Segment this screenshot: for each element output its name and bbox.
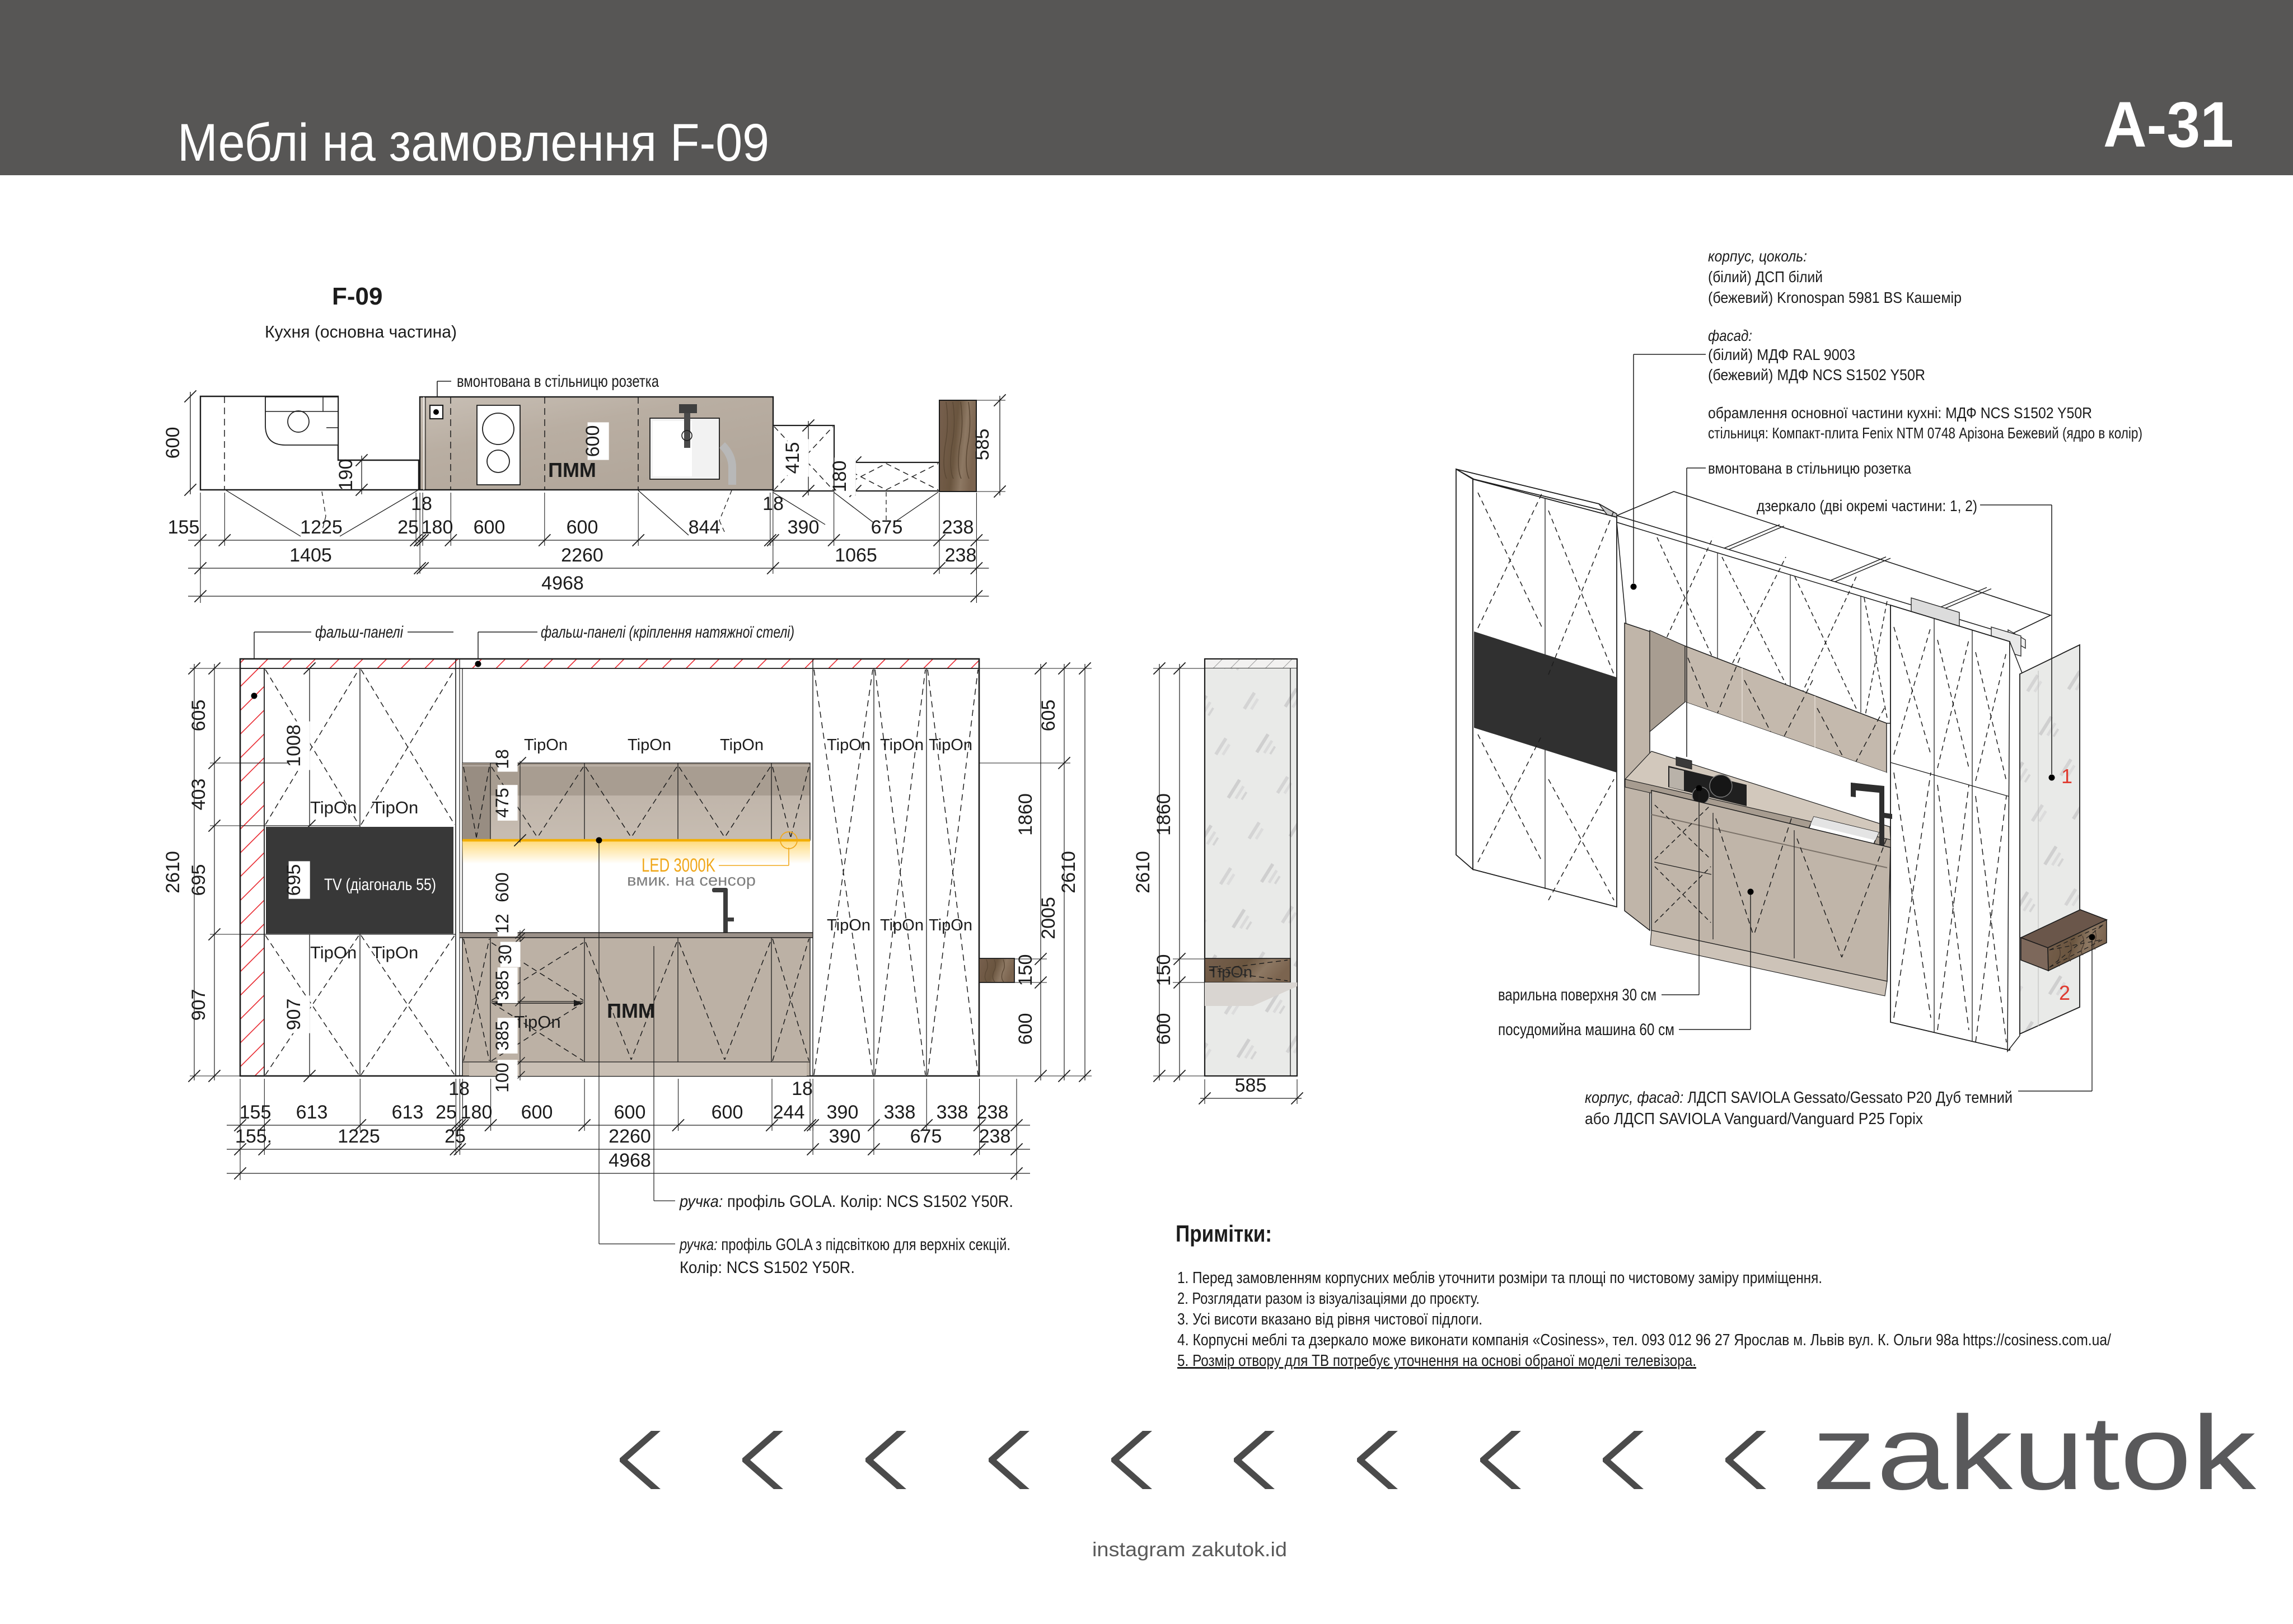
svg-text:180: 180 [829,461,850,493]
svg-text:1225: 1225 [300,517,343,538]
svg-text:25: 25 [397,517,419,538]
svg-text:TipOn: TipOn [310,798,357,817]
svg-text:TipOn: TipOn [310,943,357,962]
svg-text:обрамлення основної частини ку: обрамлення основної частини кухні: МДФ N… [1708,404,2092,422]
svg-text:390: 390 [827,1102,859,1123]
svg-text:150: 150 [1153,954,1174,986]
svg-text:238: 238 [979,1126,1011,1147]
svg-text:25: 25 [444,1126,466,1147]
svg-text:ручка: профіль GOLA. Колір: NC: ручка: профіль GOLA. Колір: NCS S1502 Y5… [679,1192,1013,1211]
svg-text:TipOn: TipOn [372,798,418,817]
svg-text:385: 385 [492,1021,512,1050]
svg-text:605: 605 [188,700,209,732]
svg-text:385: 385 [492,970,512,1000]
svg-text:600: 600 [582,425,603,457]
svg-text:155: 155 [240,1102,272,1123]
svg-text:TV (діагональ 55): TV (діагональ 55) [324,876,436,894]
svg-text:675: 675 [910,1126,942,1147]
svg-text:(бежевий) Kronospan 5981 BS: (бежевий) Kronospan 5981 BS Кашемір [1708,289,1962,306]
svg-text:403: 403 [188,779,209,811]
svg-text:TipOn: TipOn [880,736,924,754]
svg-text:5. Розмір отвору для ТВ потреб: 5. Розмір отвору для ТВ потребує уточнен… [1177,1352,1696,1370]
svg-text:instagram zakutok.id: instagram zakutok.id [1092,1538,1287,1561]
svg-text:600: 600 [1153,1013,1174,1045]
svg-text:600: 600 [614,1102,646,1123]
svg-text:1065: 1065 [835,545,877,566]
svg-text:Примітки:: Примітки: [1176,1220,1272,1247]
svg-text:1860: 1860 [1015,793,1036,836]
svg-text:613: 613 [392,1102,424,1123]
svg-text:варильна поверхня 30 см: варильна поверхня 30 см [1498,986,1656,1004]
svg-text:1860: 1860 [1153,793,1174,836]
svg-text:вмонтована в стільницю розетка: вмонтована в стільницю розетка [457,372,659,391]
svg-text:стільниця: Компакт-плита Fenix: стільниця: Компакт-плита Fenix NTM 0748 … [1708,424,2142,442]
svg-text:TipOn: TipOn [628,736,671,754]
svg-text:695: 695 [283,864,305,896]
svg-text:244: 244 [773,1102,805,1123]
svg-text:695: 695 [188,864,209,896]
svg-text:фасад:: фасад: [1708,327,1752,344]
svg-text:TipOn: TipOn [929,916,972,934]
svg-text:190: 190 [335,459,357,491]
svg-text:2610: 2610 [1133,851,1154,893]
svg-text:3. Усі висоти вказано від рівн: 3. Усі висоти вказано від рівня чистової… [1177,1311,1482,1328]
svg-text:2610: 2610 [162,851,184,893]
svg-text:2. Розглядати разом із візуалі: 2. Розглядати разом із візуалізаціями до… [1177,1290,1480,1308]
svg-text:18: 18 [792,1078,813,1099]
svg-text:12: 12 [492,914,512,934]
svg-text:238: 238 [942,517,974,538]
svg-text:907: 907 [283,999,305,1031]
svg-text:2: 2 [2059,981,2070,1004]
svg-text:475: 475 [492,788,512,817]
svg-text:A-31: A-31 [2103,89,2234,161]
svg-text:585: 585 [972,429,993,461]
svg-text:613: 613 [296,1102,328,1123]
svg-text:посудомийна машина 60 см: посудомийна машина 60 см [1498,1021,1674,1039]
svg-text:600: 600 [1015,1013,1036,1045]
svg-text:585: 585 [1235,1075,1267,1096]
svg-text:238: 238 [945,545,977,566]
svg-text:844: 844 [689,517,720,538]
svg-text:238: 238 [977,1102,1009,1123]
svg-text:1008: 1008 [283,724,305,767]
svg-text:338: 338 [884,1102,916,1123]
svg-text:F-09: F-09 [332,283,382,310]
svg-text:100: 100 [492,1063,512,1092]
svg-text:TipOn: TipOn [514,1012,560,1032]
svg-text:або ЛДСП SAVIOLA Vanguard/Vang: або ЛДСП SAVIOLA Vanguard/Vanguard P25 Г… [1585,1110,1923,1128]
svg-text:(бежевий) МДФ NCS S1502 Y50R: (бежевий) МДФ NCS S1502 Y50R [1708,366,1925,383]
svg-text:TipOn: TipOn [1209,963,1252,981]
svg-text:TipOn: TipOn [880,916,924,934]
svg-text:фальш-панелі (кріплення натяжн: фальш-панелі (кріплення натяжної стелі) [541,623,794,642]
svg-text:TipOn: TipOn [827,736,871,754]
svg-text:фальш-панелі: фальш-панелі [315,623,404,642]
svg-text:TipOn: TipOn [524,736,568,754]
svg-text:605: 605 [1038,700,1059,732]
svg-text:600: 600 [162,427,184,459]
svg-text:TipOn: TipOn [929,736,972,754]
svg-text:1405: 1405 [289,545,332,566]
svg-text:вмик. на сенсор: вмик. на сенсор [627,872,756,890]
svg-text:155: 155 [168,517,200,538]
svg-text:2610: 2610 [1058,851,1079,893]
svg-text:18: 18 [448,1078,470,1099]
svg-text:(білий) ДСП білий: (білий) ДСП білий [1708,268,1823,286]
svg-text:Кухня (основна частина): Кухня (основна частина) [265,322,457,341]
svg-text:TipOn: TipOn [720,736,764,754]
svg-text:1. Перед замовленням корпусних: 1. Перед замовленням корпусних меблів ут… [1177,1269,1822,1287]
svg-text:155.: 155. [235,1126,272,1147]
svg-text:600: 600 [492,872,512,902]
svg-text:415: 415 [782,442,803,474]
svg-text:18: 18 [411,493,432,514]
svg-text:ПММ: ПММ [548,458,596,481]
svg-text:1225: 1225 [338,1126,380,1147]
svg-text:Меблі на замовлення F-09: Меблі на замовлення F-09 [177,113,769,172]
svg-text:2260: 2260 [561,545,603,566]
svg-text:600: 600 [474,517,506,538]
svg-text:(білий) МДФ RAL 9003: (білий) МДФ RAL 9003 [1708,346,1855,363]
svg-text:907: 907 [188,989,209,1021]
svg-text:4968: 4968 [609,1150,651,1171]
svg-text:600: 600 [521,1102,553,1123]
svg-text:4968: 4968 [541,573,584,594]
svg-text:TipOn: TipOn [827,916,871,934]
svg-text:1: 1 [2061,765,2072,788]
svg-text:390: 390 [788,517,820,538]
svg-text:600: 600 [567,517,598,538]
svg-text:Колір: NCS S1502 Y50R.: Колір: NCS S1502 Y50R. [680,1258,855,1277]
svg-text:корпус, цоколь:: корпус, цоколь: [1708,247,1807,265]
svg-text:ПММ: ПММ [607,999,655,1022]
svg-text:дзеркало (дві окремі частини:: дзеркало (дві окремі частини: 1, 2) [1757,497,1977,514]
svg-text:2260: 2260 [609,1126,651,1147]
svg-text:корпус, фасад: ЛДСП SAVIOLA Ge: корпус, фасад: ЛДСП SAVIOLA Gessato/Gess… [1585,1089,2013,1107]
svg-text:180: 180 [422,517,453,538]
svg-text:30: 30 [495,944,515,965]
svg-text:TipOn: TipOn [372,943,418,962]
svg-text:18: 18 [492,749,512,769]
svg-text:600: 600 [712,1102,743,1123]
svg-text:18: 18 [762,493,784,514]
svg-text:180: 180 [461,1102,493,1123]
svg-text:25: 25 [436,1102,457,1123]
svg-text:вмонтована в стільницю розетка: вмонтована в стільницю розетка [1708,460,1911,477]
svg-text:2005: 2005 [1038,897,1059,939]
svg-text:4. Корпусні меблі та дзеркало: 4. Корпусні меблі та дзеркало може викон… [1177,1331,2112,1349]
svg-text:338: 338 [937,1102,968,1123]
svg-text:zakutok: zakutok [1812,1394,2257,1511]
svg-text:390: 390 [829,1126,861,1147]
svg-text:ручка: профіль GOLA з підсвітк: ручка: профіль GOLA з підсвіткою для вер… [679,1235,1010,1254]
